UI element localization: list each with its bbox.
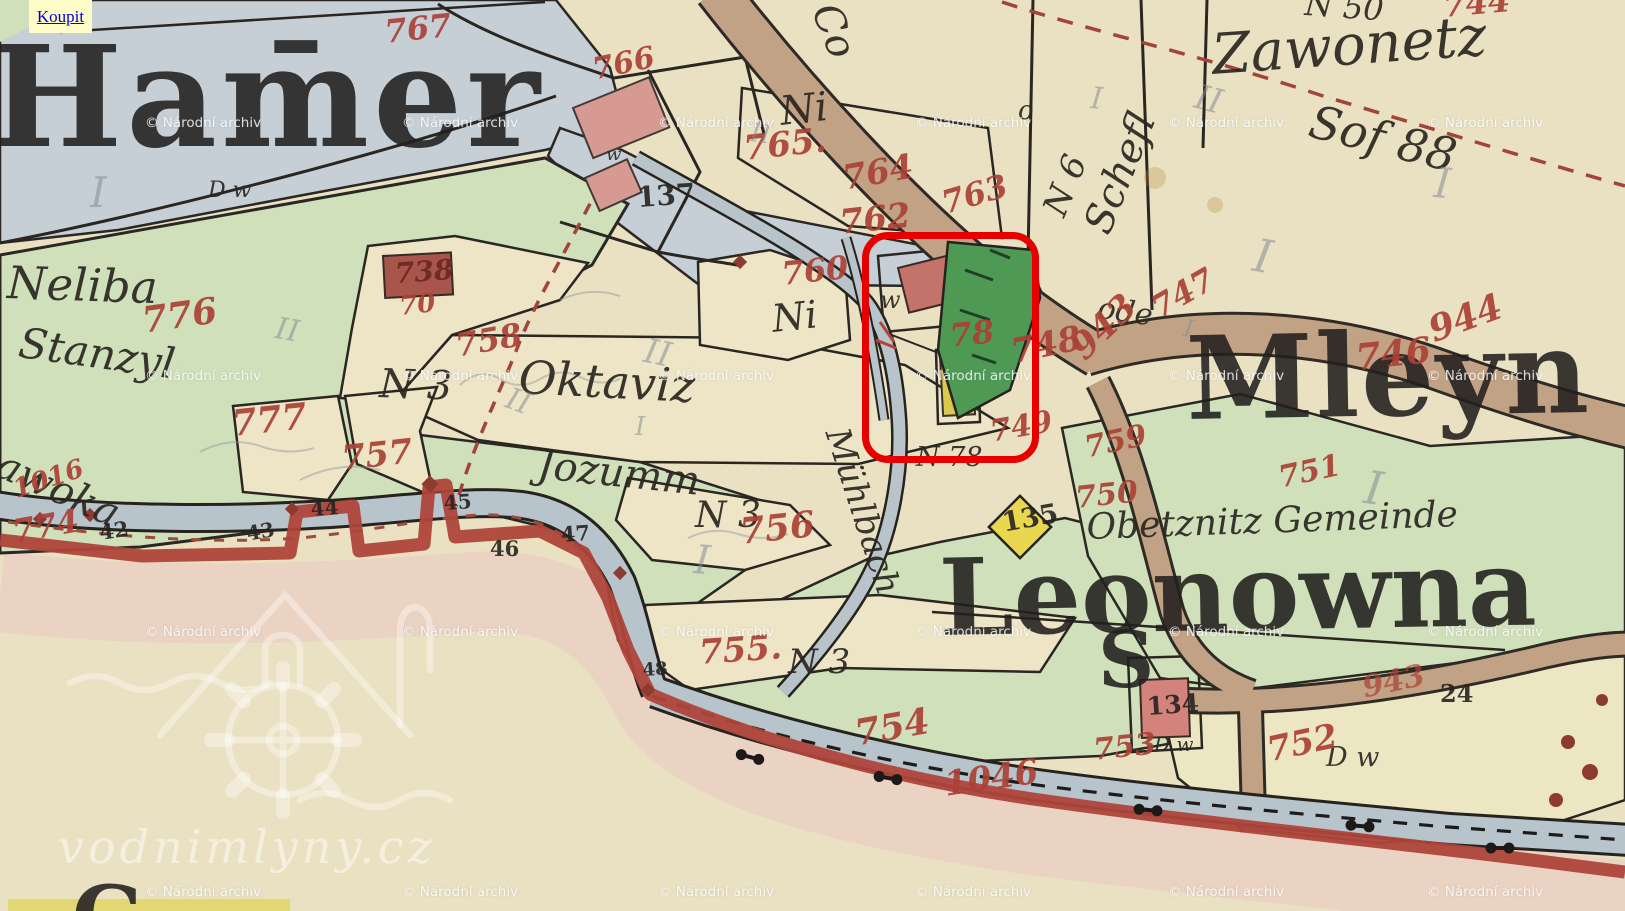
cadastral-map-image [0,0,1625,911]
paper-stain [1144,167,1166,189]
highlight-annotation-rect [862,232,1039,463]
paper-stain [1207,197,1223,213]
buy-button[interactable]: Koupit [29,0,92,33]
map-viewer: Ham̄erMleynLeonownaSGNelibaStanzyltawoka… [0,0,1625,911]
